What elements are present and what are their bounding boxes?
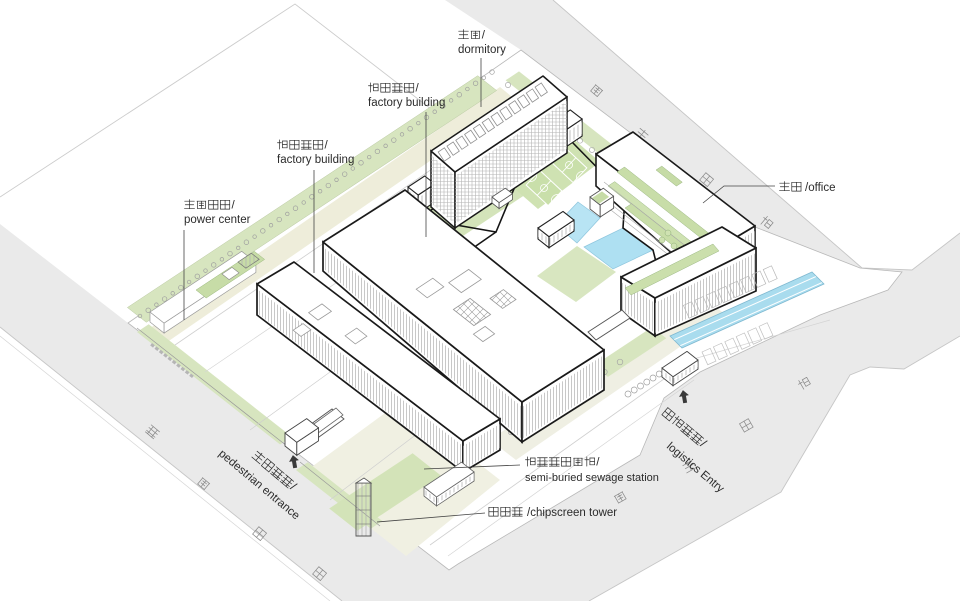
- svg-text:/office: /office: [805, 182, 835, 194]
- svg-text:power center: power center: [184, 214, 251, 226]
- svg-text:factory building: factory building: [277, 154, 354, 166]
- svg-text:semi-buried sewage station: semi-buried sewage station: [525, 472, 659, 484]
- svg-text:factory building: factory building: [368, 97, 445, 109]
- svg-text:/chipscreen tower: /chipscreen tower: [527, 507, 617, 519]
- svg-text:dormitory: dormitory: [458, 44, 506, 56]
